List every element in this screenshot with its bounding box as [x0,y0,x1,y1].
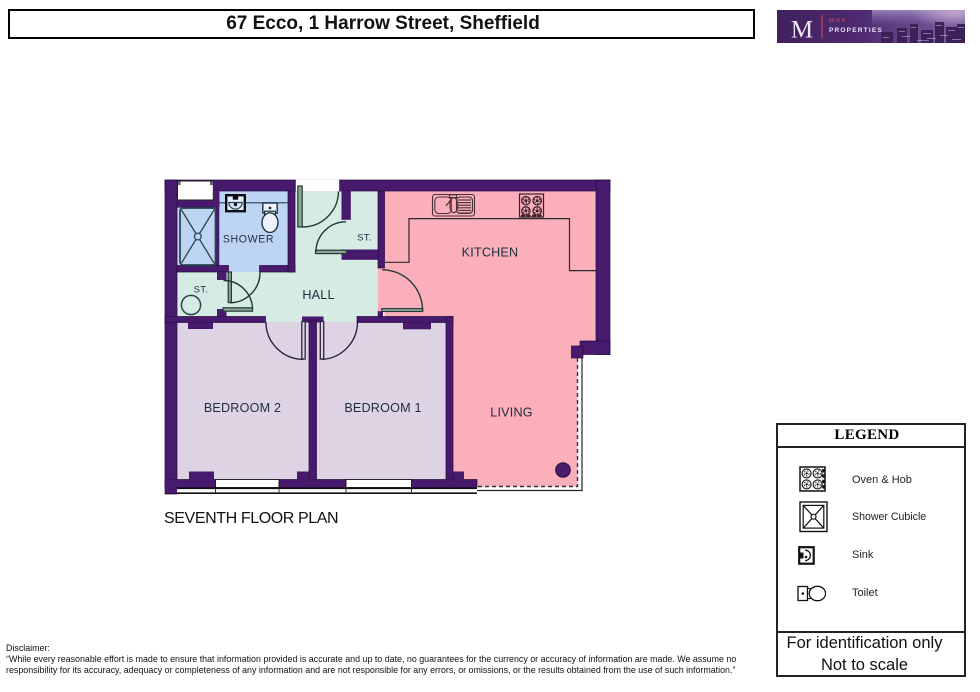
svg-text:HALL: HALL [302,288,334,302]
svg-text:KITCHEN: KITCHEN [462,246,519,260]
svg-text:SHOWER: SHOWER [223,234,274,246]
svg-text:ST.: ST. [194,285,209,296]
svg-text:BEDROOM 1: BEDROOM 1 [344,401,421,415]
svg-text:BEDROOM 2: BEDROOM 2 [204,401,281,415]
svg-text:LIVING: LIVING [490,406,533,420]
svg-text:ST.: ST. [357,233,372,244]
